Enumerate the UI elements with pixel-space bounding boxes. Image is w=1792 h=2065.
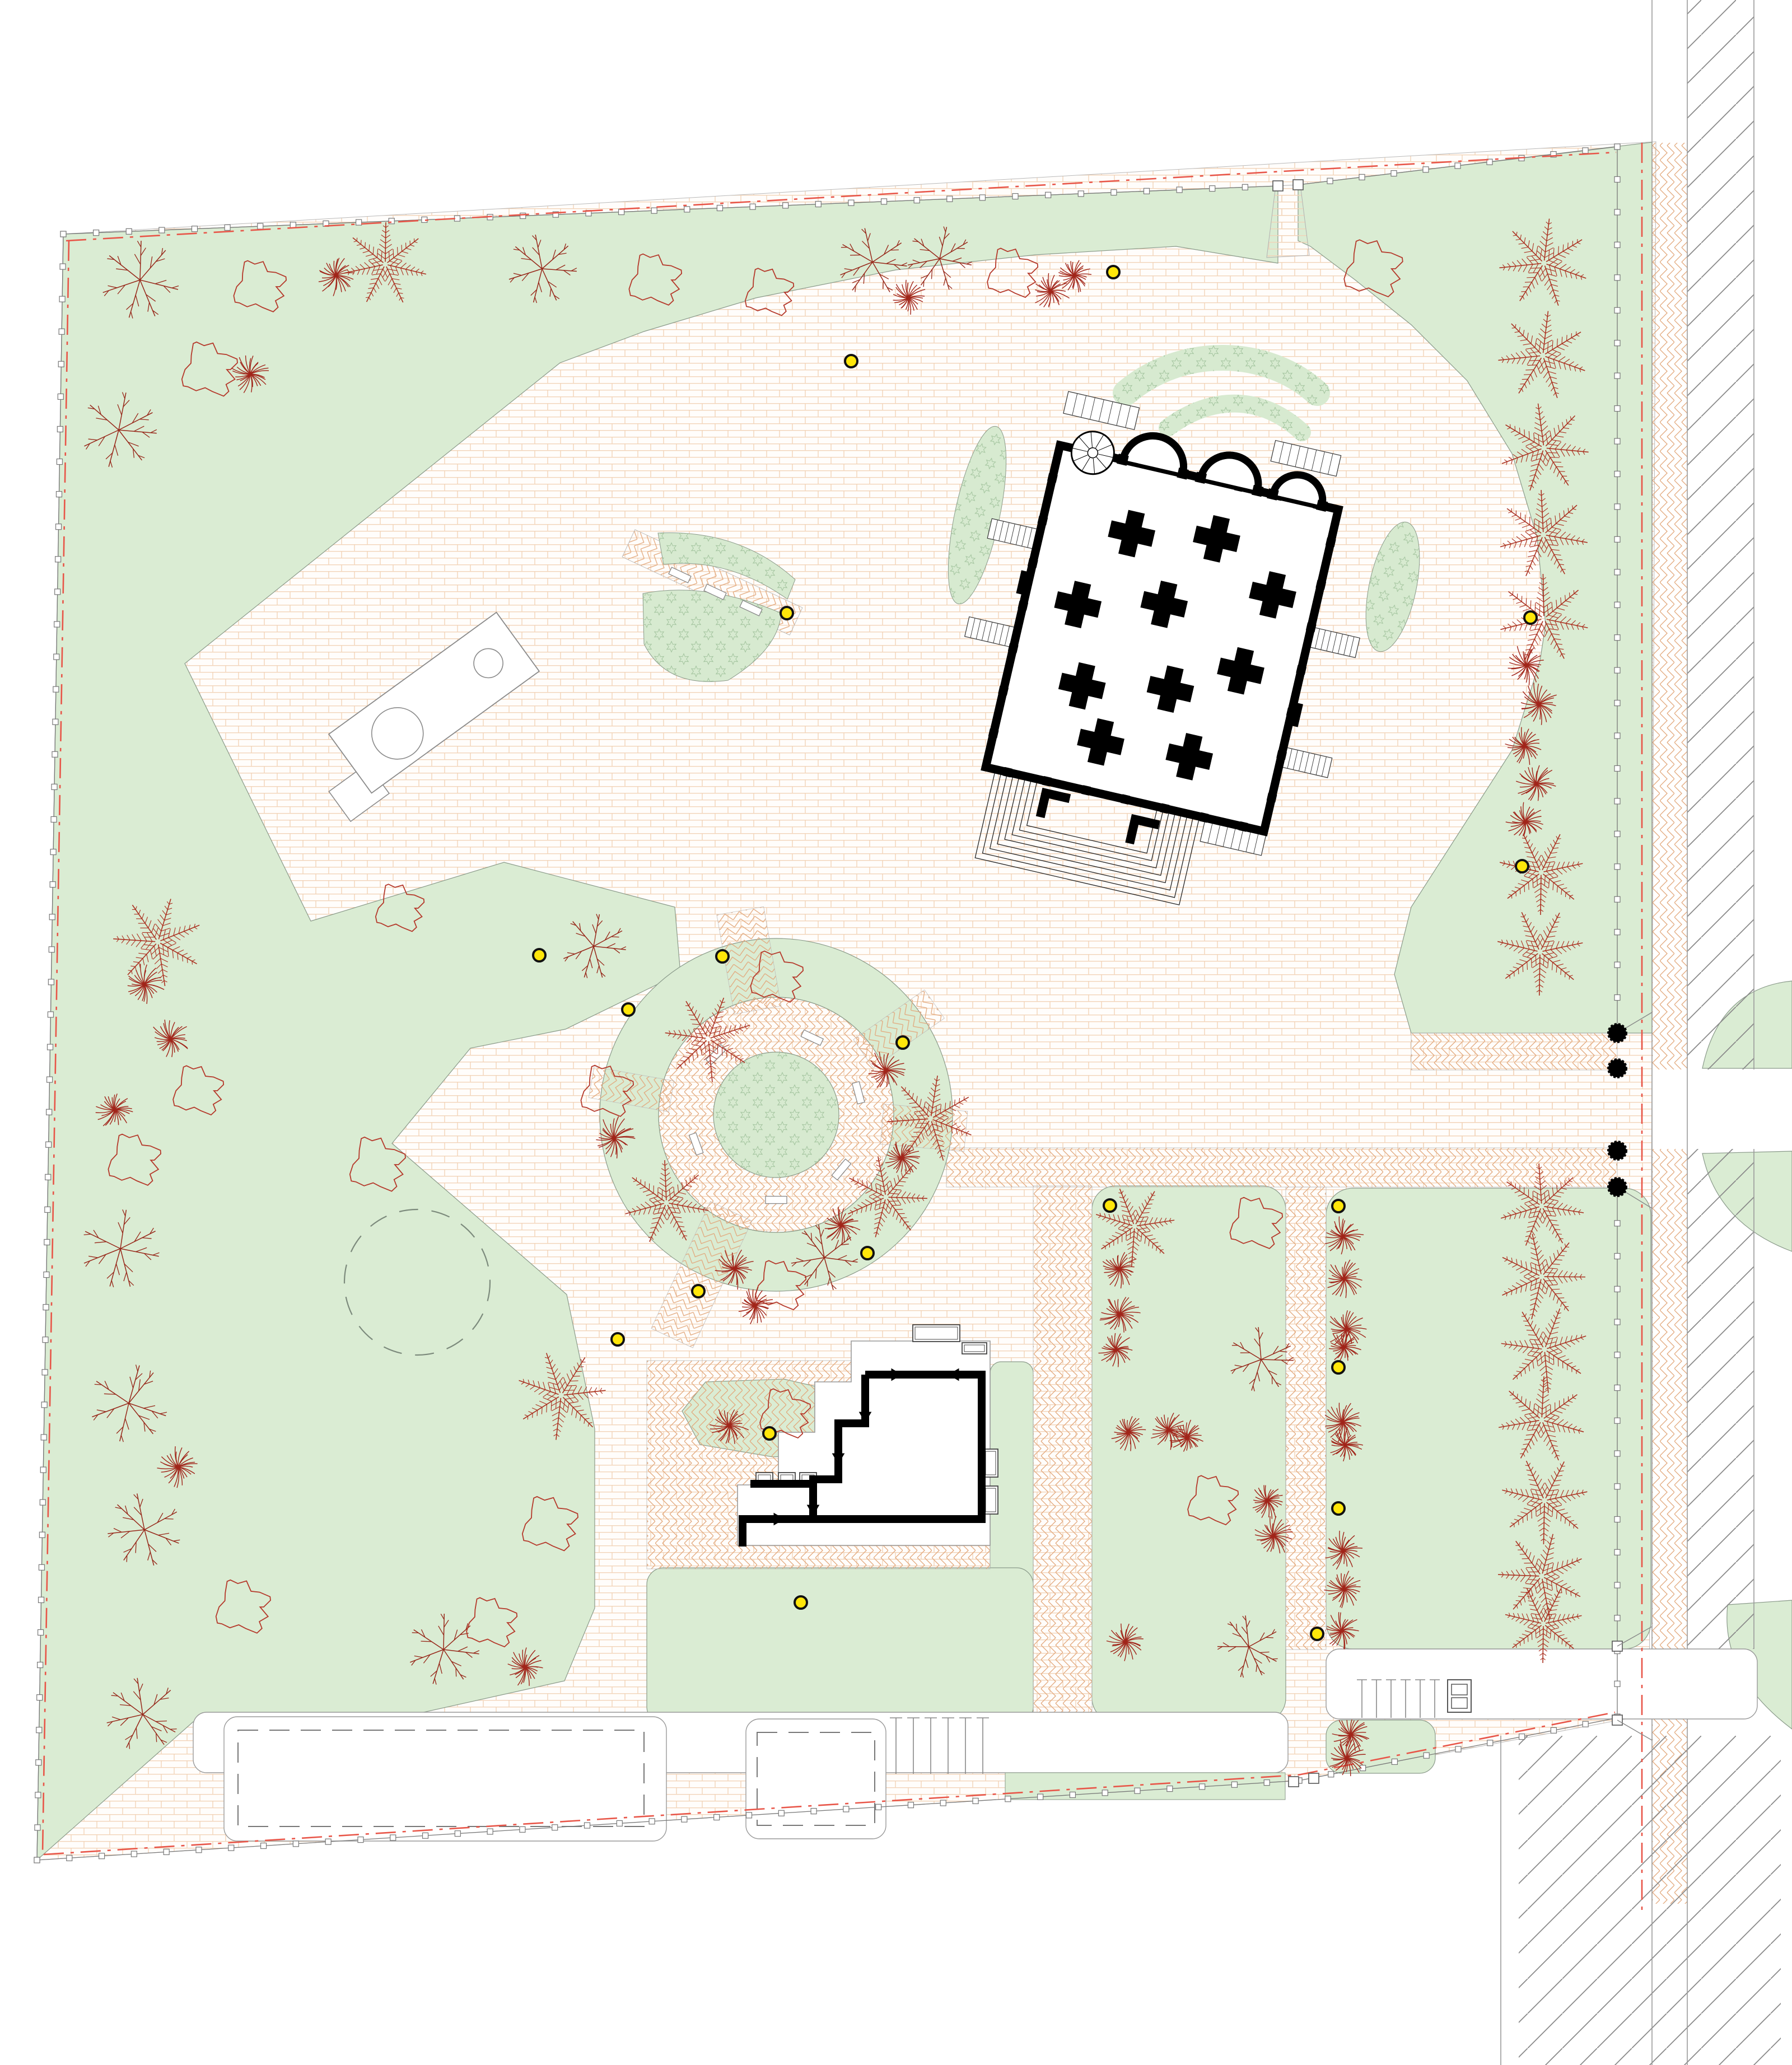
fence-post [46, 1109, 52, 1115]
fence-post [56, 524, 62, 530]
fence-post [617, 1820, 622, 1826]
fence-post [39, 1532, 45, 1538]
fence-post [423, 1833, 428, 1838]
fence-post [1614, 340, 1620, 346]
fence-post [54, 622, 60, 627]
fence-post [783, 203, 788, 208]
fence-post [1111, 190, 1117, 195]
fence-post [1614, 1319, 1620, 1325]
fence-post [1392, 1759, 1397, 1764]
fence-post [1614, 1681, 1620, 1686]
fence-post [36, 1727, 42, 1733]
fence-post [94, 230, 99, 236]
fence-post [1614, 1549, 1620, 1555]
road-hatch-southeast [1519, 1736, 1781, 2065]
lawn-annex-south [647, 1568, 1033, 1723]
garden-light [533, 949, 545, 961]
gate-post [1289, 1777, 1299, 1787]
parking-bay-1 [224, 1717, 666, 1841]
walk-channel-2 [1286, 1187, 1326, 1650]
parking-bay-2 [746, 1719, 886, 1839]
fence-post [848, 200, 854, 205]
garden-light [763, 1427, 776, 1440]
fence-post [1038, 1794, 1043, 1800]
fence-post [42, 1370, 48, 1375]
fence-post [1328, 1772, 1334, 1777]
fence-post [192, 226, 197, 232]
sidewalk-strip [1652, 1149, 1687, 1649]
fence-post [44, 1239, 50, 1245]
garden-light [1311, 1628, 1323, 1640]
fence-post [37, 1695, 43, 1700]
garden-light [897, 1036, 909, 1049]
fence-post [811, 1809, 816, 1814]
fence-post [390, 1835, 396, 1840]
fence-post [1614, 995, 1620, 1001]
fence-post [1614, 406, 1620, 412]
fence-post [48, 979, 54, 985]
fence-post [1391, 171, 1397, 176]
fence-post [356, 219, 362, 225]
garden-light [1524, 611, 1537, 624]
fence-post [1551, 1727, 1556, 1733]
fence-post [50, 882, 55, 887]
fence-post [973, 1798, 978, 1804]
fence-post [49, 914, 55, 920]
site-plan-drawing [0, 0, 1792, 2065]
fence-post [48, 1012, 53, 1017]
bollard [1608, 1142, 1626, 1160]
fence-post [1102, 1790, 1108, 1796]
roundabout-center-bed [713, 1052, 839, 1178]
fence-post [1167, 1786, 1173, 1792]
fence-post [126, 228, 132, 234]
fence-post [159, 227, 165, 233]
fence-post [35, 1825, 40, 1830]
garden-light [1332, 1502, 1345, 1515]
fence-post [1614, 765, 1620, 771]
fence-post [55, 589, 60, 595]
fence-post [876, 1804, 881, 1810]
fence-post [1070, 1792, 1075, 1797]
fence-post [1614, 1615, 1620, 1621]
fence-post [1614, 536, 1620, 542]
fence-post [48, 1044, 53, 1050]
fence-post [1046, 192, 1051, 198]
fence-post [1614, 733, 1620, 739]
fence-post [1614, 471, 1620, 476]
fence-post [56, 492, 62, 497]
garden-light [795, 1596, 807, 1609]
garden-light [612, 1333, 624, 1345]
fence-post [619, 209, 624, 214]
fence-post [55, 557, 61, 562]
fence-post [750, 204, 755, 209]
fence-post [843, 1806, 849, 1812]
fence-post [1614, 438, 1620, 444]
fence-post [487, 1829, 493, 1834]
fence-post [41, 1402, 47, 1408]
fence-post [57, 426, 63, 432]
fence-post [1614, 209, 1620, 215]
fence-post [1614, 242, 1620, 247]
fence-post [552, 1825, 558, 1830]
fence-post [1242, 184, 1248, 190]
fence-post [53, 719, 58, 725]
fence-post [38, 1629, 44, 1635]
fence-post [1614, 700, 1620, 706]
fence-post [714, 1815, 720, 1820]
bench [766, 1197, 787, 1204]
fence-post [454, 216, 460, 221]
fence-post [717, 205, 722, 211]
fence-post [1614, 962, 1620, 968]
bollard [1608, 1024, 1626, 1042]
bollard [1608, 1178, 1626, 1196]
fence-post [815, 202, 821, 207]
garden-light [1332, 1200, 1345, 1212]
fence-post [1614, 1286, 1620, 1292]
fence-post [1231, 1782, 1237, 1787]
fence-post [1519, 1734, 1525, 1740]
fence-post [1614, 929, 1620, 935]
fence-post [164, 1849, 169, 1854]
fence-post [1424, 1753, 1429, 1758]
fence-post [45, 1207, 50, 1212]
fence-post [520, 1826, 525, 1832]
fence-post [1614, 1254, 1620, 1259]
bollard [1608, 1059, 1626, 1077]
garden-light [861, 1247, 874, 1259]
fence-post [60, 264, 66, 269]
fence-post [228, 1845, 234, 1851]
fence-post [59, 296, 65, 302]
garden-light [845, 355, 857, 367]
fence-post [39, 1597, 44, 1603]
fence-post [44, 1272, 49, 1278]
fence-post [908, 1802, 913, 1808]
fence-post [1614, 1484, 1620, 1489]
fence-post [1012, 194, 1018, 199]
gate-post [1273, 181, 1283, 191]
garden-light [1107, 266, 1119, 278]
fence-post [1144, 188, 1150, 194]
fence-post [39, 1564, 44, 1570]
fence-post [1614, 307, 1620, 313]
walk-channel-1 [1033, 1186, 1092, 1722]
fence-post [1614, 1352, 1620, 1358]
road-hatch [1687, 1149, 1754, 1649]
fence-post [325, 1839, 331, 1844]
fence-post [52, 784, 57, 789]
fence-post [881, 199, 887, 204]
garden-light [781, 607, 793, 619]
garden-light [1104, 1199, 1116, 1212]
lawn-se-pocket [1326, 1720, 1435, 1773]
fence-post [1614, 1582, 1620, 1588]
fence-post [1614, 1385, 1620, 1391]
fence-post [1359, 174, 1365, 180]
fence-post [1614, 864, 1620, 870]
fence-post [1583, 1721, 1588, 1727]
fence-post [1487, 1740, 1493, 1746]
sidewalk-strip [1652, 143, 1687, 1069]
garden-light [716, 950, 729, 963]
fence-post [225, 225, 230, 230]
fence-post [1078, 191, 1084, 197]
fence-post [47, 1077, 53, 1082]
fence-post [36, 1760, 41, 1765]
fence-post [1583, 148, 1588, 153]
fence-post [1455, 1746, 1461, 1752]
fence-post [67, 1855, 72, 1861]
fence-post [131, 1851, 137, 1857]
fence-post [585, 1823, 590, 1828]
garden-light [622, 1003, 634, 1016]
fence-post [52, 751, 58, 757]
fence-post [1614, 1517, 1620, 1522]
fence-post [947, 196, 953, 202]
fence-post [258, 223, 263, 229]
fence-post [979, 195, 985, 200]
fence-post [1135, 1788, 1140, 1793]
fence-post [34, 1857, 40, 1863]
gate-post [1309, 1773, 1319, 1783]
fence-post [682, 1816, 687, 1822]
fence-post [1614, 504, 1620, 510]
fence-post [58, 361, 64, 367]
fence-post [914, 198, 920, 203]
parking-green-band [1005, 1773, 1285, 1800]
fence-post [53, 686, 59, 692]
road-hatch [1687, 0, 1754, 1069]
fence-post [1005, 1796, 1011, 1802]
fence-post [1177, 187, 1182, 193]
fence-post [1614, 667, 1620, 673]
fence-post [1614, 144, 1620, 149]
lawn-se-2 [1326, 1188, 1651, 1649]
fence-post [49, 947, 54, 952]
fence-post [1614, 176, 1620, 182]
fence-post [40, 1499, 45, 1505]
fence-post [1614, 635, 1620, 641]
entrance-driveway [1411, 1070, 1617, 1148]
fence-post [45, 1174, 51, 1180]
fence-post [293, 1841, 298, 1847]
fence-post [358, 1837, 363, 1843]
fence-post [1614, 831, 1620, 837]
fence-post [35, 1792, 41, 1798]
fence-post [1200, 1784, 1205, 1790]
fence-post [940, 1800, 946, 1806]
fence-post [1614, 1418, 1620, 1423]
fence-post [1614, 373, 1620, 379]
fence-post [290, 222, 296, 228]
fence-post [1264, 1780, 1270, 1786]
fence-post [59, 329, 64, 334]
fence-post [50, 849, 56, 855]
entrance-apron-top [1411, 1033, 1617, 1070]
fence-post [1614, 896, 1620, 902]
fence-post [746, 1812, 752, 1818]
fence-post [46, 1142, 52, 1147]
site-plan-canvas [0, 0, 1792, 2065]
fence-post [196, 1847, 202, 1853]
fence-post [51, 816, 57, 822]
garden-light [1332, 1361, 1345, 1373]
fence-post [60, 231, 66, 237]
fence-post [651, 208, 657, 213]
fence-post [1614, 602, 1620, 608]
fence-post [1455, 163, 1460, 169]
fence-post [1423, 167, 1429, 172]
fence-post [41, 1435, 46, 1440]
fence-post [57, 459, 62, 465]
fence-post [684, 207, 690, 212]
fence-post [40, 1467, 46, 1473]
fence-post [1614, 569, 1620, 575]
fence-post [1614, 275, 1620, 281]
fence-post [1210, 186, 1215, 191]
fence-post [778, 1810, 784, 1816]
fence-post [1614, 1451, 1620, 1456]
garden-light [692, 1285, 704, 1297]
fence-post [38, 1662, 43, 1668]
fence-post [43, 1337, 48, 1343]
walk-east-band [946, 1148, 1617, 1187]
garden-light [1516, 860, 1528, 872]
fence-post [1327, 178, 1333, 184]
fence-post [1614, 1221, 1620, 1226]
gate-post [1293, 180, 1303, 190]
fence-post [43, 1305, 49, 1310]
fence-post [261, 1843, 267, 1849]
fence-post [54, 654, 59, 660]
fence-post [649, 1819, 655, 1824]
fence-post [1614, 798, 1620, 804]
fence-post [99, 1853, 105, 1859]
fence-post [455, 1831, 460, 1837]
fence-post [58, 394, 63, 399]
